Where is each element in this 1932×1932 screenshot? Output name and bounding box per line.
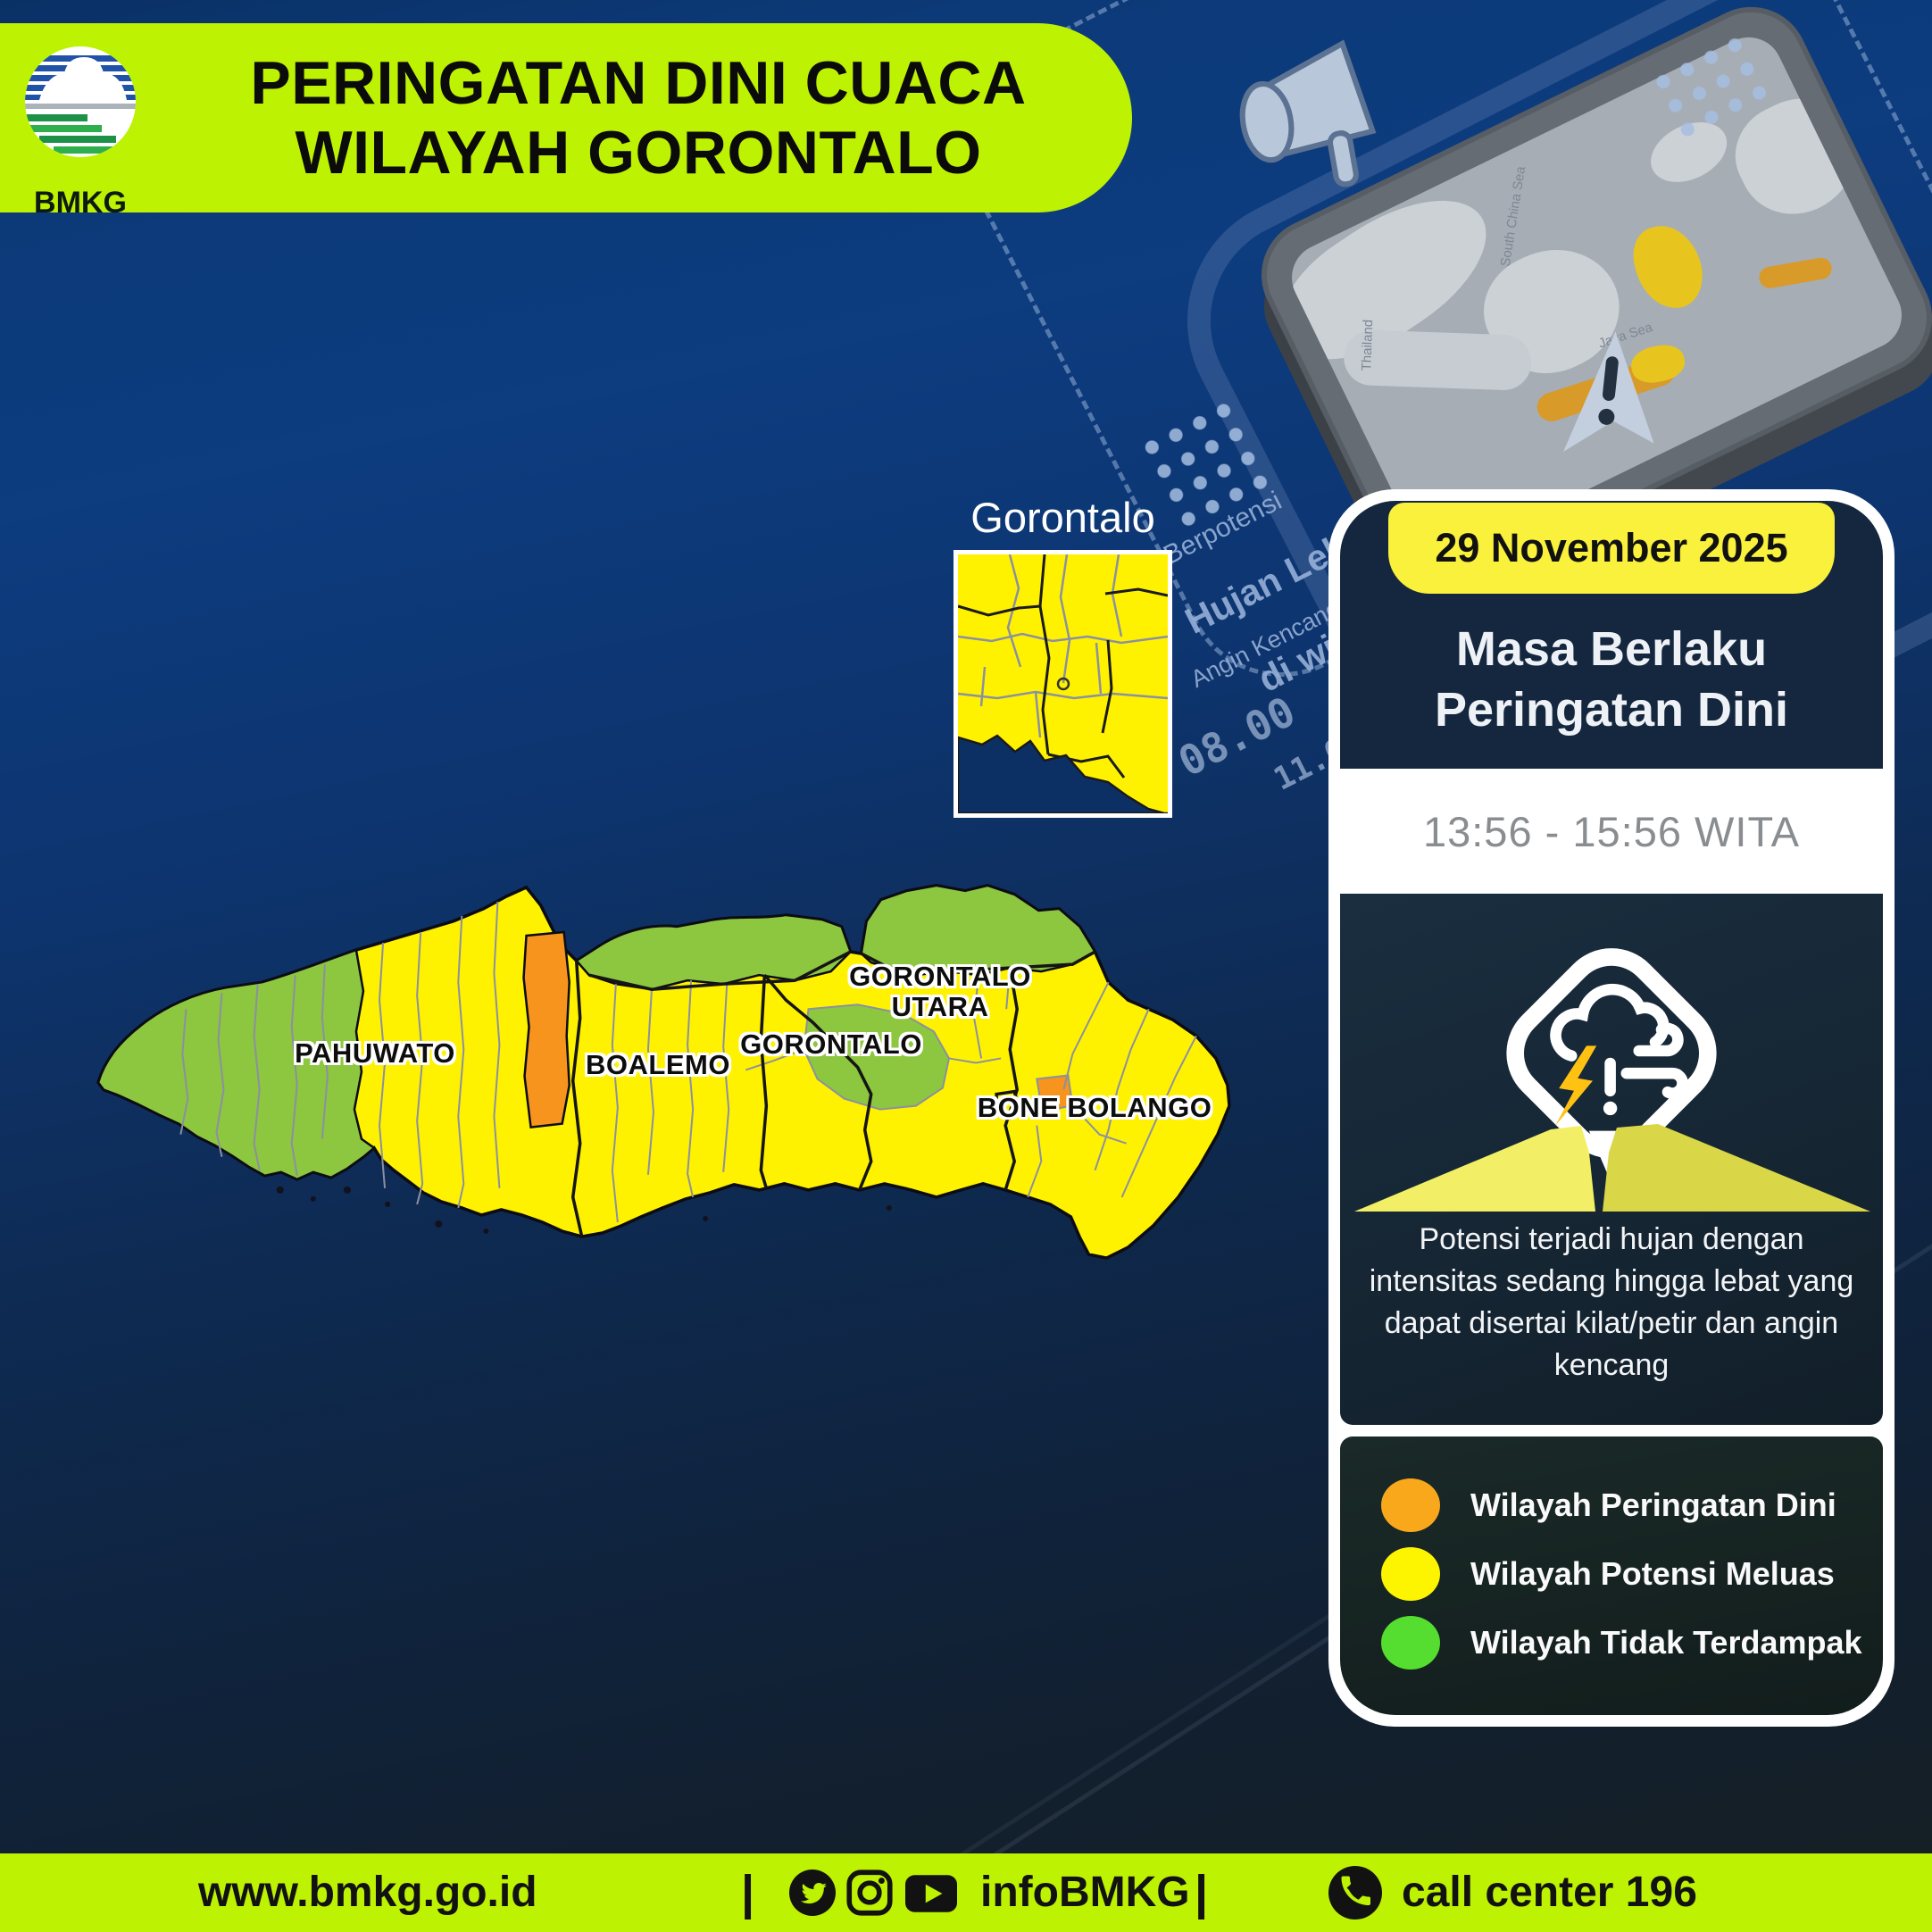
- time-range: 13:56 - 15:56 WITA: [1340, 769, 1883, 894]
- highlight-yellow-region: [1626, 217, 1711, 316]
- legend-dot-warning: [1381, 1478, 1440, 1532]
- map-label-pahuwato: PAHUWATO: [295, 1038, 455, 1069]
- twitter-icon: [789, 1870, 836, 1916]
- map-label-boalemo: BOALEMO: [586, 1050, 730, 1080]
- megaphone-icon: [1197, 11, 1411, 231]
- separator: |: [1195, 1853, 1208, 1932]
- screen-label: South China Sea: [1498, 165, 1529, 268]
- call-center-text: call center 196: [1402, 1853, 1697, 1932]
- youtube-icon: [905, 1875, 957, 1912]
- bmkg-logo: BMKG: [21, 41, 146, 220]
- inset-map-canvas: [958, 554, 1168, 813]
- caption-text: Angin Kencang: [1187, 595, 1345, 694]
- hazard-description: Potensi terjadi hujan dengan intensitas …: [1360, 1219, 1863, 1387]
- validity-section: 29 November 2025 Masa Berlaku Peringatan…: [1340, 501, 1883, 769]
- page-title-line1: PERINGATAN DINI CUACA: [183, 48, 1094, 118]
- province-map: PAHUWATO BOALEMO GORONTALO GORONTALO UTA…: [79, 873, 1243, 1279]
- warning-cursor-icon: [1548, 321, 1669, 468]
- footer-bar: www.bmkg.go.id | infoBMKG | call center …: [0, 1853, 1932, 1932]
- legend-row: Wilayah Potensi Meluas: [1381, 1547, 1865, 1601]
- dot-grid: [1645, 27, 1781, 153]
- map-label-bone-bolango: BONE BOLANGO: [978, 1093, 1212, 1123]
- region-warning-strip: [524, 932, 570, 1128]
- phone-screen: Thailand South China Sea Java Sea: [1280, 26, 1913, 567]
- screen-label: Thailand: [1359, 320, 1376, 371]
- inset-map: [954, 550, 1172, 818]
- clock-text: 08.00: [1170, 687, 1303, 787]
- legend-dot-unaffected: [1381, 1616, 1440, 1670]
- website-text: www.bmkg.go.id: [198, 1853, 537, 1932]
- highlight-orange-region: [1534, 354, 1678, 425]
- legend-label: Wilayah Potensi Meluas: [1470, 1555, 1835, 1593]
- warning-card-main: 29 November 2025 Masa Berlaku Peringatan…: [1340, 501, 1883, 1425]
- map-label-gorontalo-utara: GORONTALO UTARA: [849, 962, 1031, 1022]
- instagram-icon: [846, 1870, 893, 1916]
- validity-title: Masa Berlaku Peringatan Dini: [1340, 619, 1883, 740]
- page-title: PERINGATAN DINI CUACA WILAYAH GORONTALO: [183, 48, 1094, 187]
- legend-label: Wilayah Peringatan Dini: [1470, 1486, 1836, 1524]
- warning-card: 29 November 2025 Masa Berlaku Peringatan…: [1328, 489, 1895, 1727]
- social-handle: infoBMKG: [980, 1853, 1190, 1932]
- inset-map-title: Gorontalo: [936, 493, 1190, 542]
- legend-section: Wilayah Peringatan Dini Wilayah Potensi …: [1340, 1437, 1883, 1715]
- bmkg-logo-text: BMKG: [34, 186, 127, 220]
- legend-row: Wilayah Tidak Terdampak: [1381, 1616, 1865, 1670]
- date-badge: 29 November 2025: [1388, 503, 1835, 594]
- map-label-gorontalo: GORONTALO: [740, 1029, 922, 1060]
- legend-row: Wilayah Peringatan Dini: [1381, 1478, 1865, 1532]
- legend-dot-potential: [1381, 1547, 1440, 1601]
- mound-graphic: [1347, 1115, 1876, 1212]
- infographic-poster: Thailand South China Sea Java Sea Berpot…: [0, 0, 1932, 1932]
- separator: |: [741, 1853, 754, 1932]
- header-banner: BMKG PERINGATAN DINI CUACA WILAYAH GORON…: [0, 23, 1132, 212]
- hazard-section: Potensi terjadi hujan dengan intensitas …: [1340, 894, 1883, 1425]
- screen-label: Java Sea: [1596, 320, 1654, 351]
- page-title-line2: WILAYAH GORONTALO: [183, 118, 1094, 187]
- phone-icon: [1328, 1866, 1382, 1920]
- legend-label: Wilayah Tidak Terdampak: [1470, 1624, 1862, 1661]
